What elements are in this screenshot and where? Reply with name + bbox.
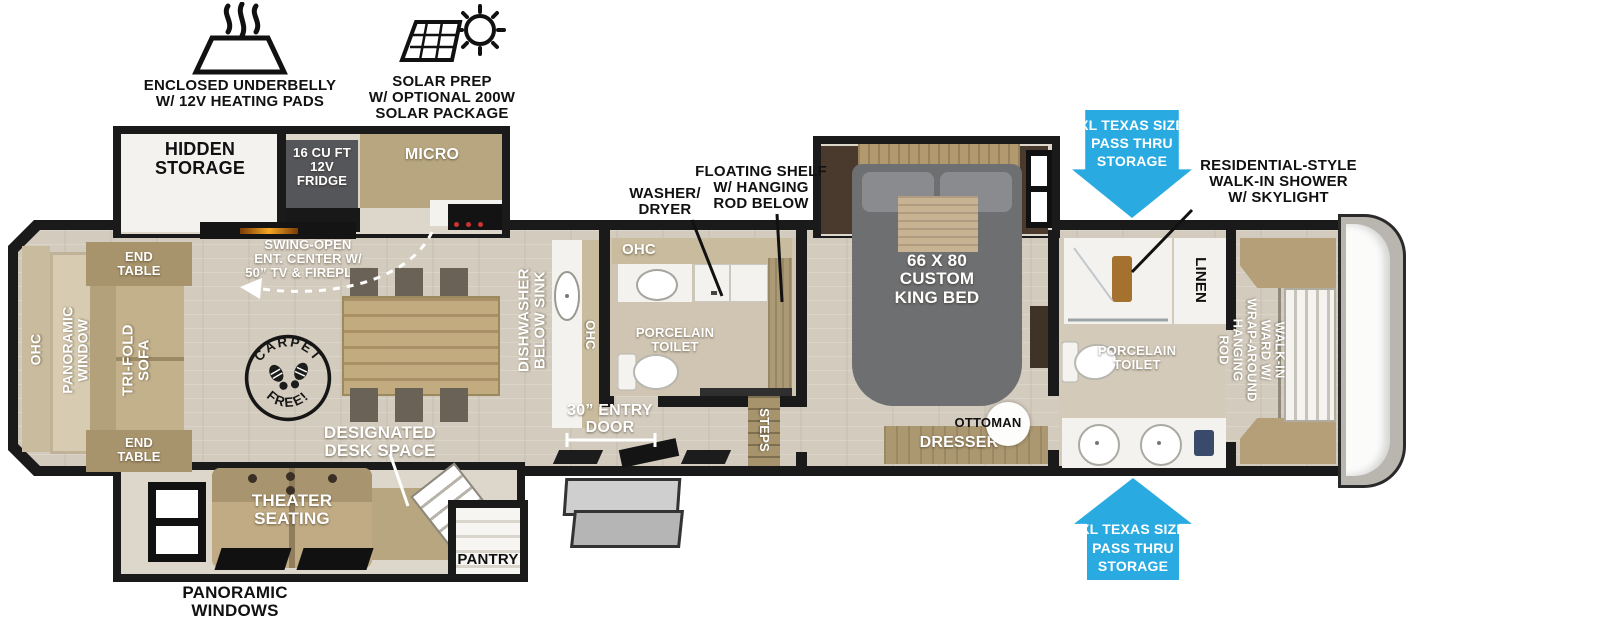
washer-dryer-units xyxy=(694,264,768,302)
fireplace-glow xyxy=(240,228,298,234)
midbath-threshold xyxy=(700,388,792,396)
dishwasher-label: DISHWASHER BELOW SINK xyxy=(517,268,549,372)
underbelly-label: ENCLOSED UNDERBELLY W/ 12V HEATING PADS xyxy=(135,78,345,110)
shower-glass xyxy=(1064,238,1172,324)
frontbath-toilet-label: PORCELAIN TOILET xyxy=(1082,344,1192,372)
entry-mat-left xyxy=(553,450,603,464)
footprints-icon xyxy=(266,360,310,392)
fridge-label: 16 CU FT 12V FRIDGE xyxy=(286,146,358,188)
cooktop xyxy=(448,204,502,230)
midbath-vanity xyxy=(618,264,692,302)
wall-bath-bedroom xyxy=(796,230,807,407)
floating-shelf xyxy=(768,258,792,392)
pass-thru-arrow-up-icon: XL TEXAS SIZE PASS THRU STORAGE xyxy=(1074,478,1192,580)
theater-slide-window xyxy=(148,482,206,562)
walkin-ward-label: WALK-IN WARD W/ WRAP-AROUND HANGING ROD xyxy=(1217,298,1287,401)
midbath-toilet-label: PORCELAIN TOILET xyxy=(620,326,730,354)
pass-thru-top-label: XL TEXAS SIZE PASS THRU STORAGE xyxy=(1079,116,1185,171)
solar-label: SOLAR PREP W/ OPTIONAL 200W SOLAR PACKAG… xyxy=(352,74,532,123)
bedroom-tv-cabinet xyxy=(1030,306,1048,368)
walkin-shower-label: RESIDENTIAL-STYLE WALK-IN SHOWER W/ SKYL… xyxy=(1186,158,1371,207)
floor-mat-right xyxy=(296,548,373,570)
floating-shelf-label: FLOATING SHELF W/ HANGING ROD BELOW xyxy=(676,164,846,213)
wall-living-bath xyxy=(599,230,610,404)
steps-label: STEPS xyxy=(757,408,771,452)
micro-label: MICRO xyxy=(390,146,474,163)
carpet-word: CARPET xyxy=(251,334,325,364)
svg-text:FREE!: FREE! xyxy=(264,388,312,410)
trifold-sofa-label: TRI-FOLD SOFA xyxy=(121,324,153,396)
midbath-toilet xyxy=(618,350,680,394)
kitchen-wall-divider xyxy=(277,134,286,232)
theater-seating-label: THEATER SEATING xyxy=(222,492,362,529)
wall-bedroom-frontbath xyxy=(1048,230,1059,396)
carpet-free-stamp: CARPET FREE! xyxy=(243,333,333,423)
panoramic-windows-label: PANORAMIC WINDOWS xyxy=(150,584,320,621)
hidden-storage-label: HIDDEN STORAGE xyxy=(132,140,268,179)
dining-chair xyxy=(350,388,378,422)
svg-text:CARPET: CARPET xyxy=(251,334,325,364)
pantry-label: PANTRY xyxy=(450,552,526,568)
wall-bath-ward-lower xyxy=(1226,442,1236,466)
free-word: FREE! xyxy=(264,388,312,410)
pass-thru-bottom-label: XL TEXAS SIZE PASS THRU STORAGE xyxy=(1080,520,1186,575)
frontbath-vanity xyxy=(1062,418,1226,468)
ward-shelf-bottom xyxy=(1240,418,1336,464)
heating-pad-icon xyxy=(190,2,290,76)
rv-floorplan-diagram: ENCLOSED UNDERBELLY W/ 12V HEATING PADS … xyxy=(0,0,1600,625)
desk-space-label: DESIGNATED DESK SPACE xyxy=(290,424,470,461)
dining-chair xyxy=(395,388,423,422)
entry-door-label: 30” ENTRY DOOR xyxy=(545,402,675,437)
ottoman-label: OTTOMAN xyxy=(938,416,1038,430)
end-table-bottom-label: END TABLE xyxy=(86,436,192,464)
front-cap-inner xyxy=(1346,224,1390,476)
pass-thru-arrow-down-icon: XL TEXAS SIZE PASS THRU STORAGE xyxy=(1072,110,1192,218)
midbath-ohc-label: OHC xyxy=(622,242,670,258)
king-bed-label: 66 X 80 CUSTOM KING BED xyxy=(862,252,1012,307)
bedroom-slide-window xyxy=(1026,150,1052,228)
floor-mat-left xyxy=(214,548,291,570)
wall-bedroom-frontbath-lower xyxy=(1048,450,1059,466)
exterior-steps xyxy=(562,478,680,548)
end-table-top-label: END TABLE xyxy=(86,250,192,278)
solar-prep-icon xyxy=(398,4,508,74)
